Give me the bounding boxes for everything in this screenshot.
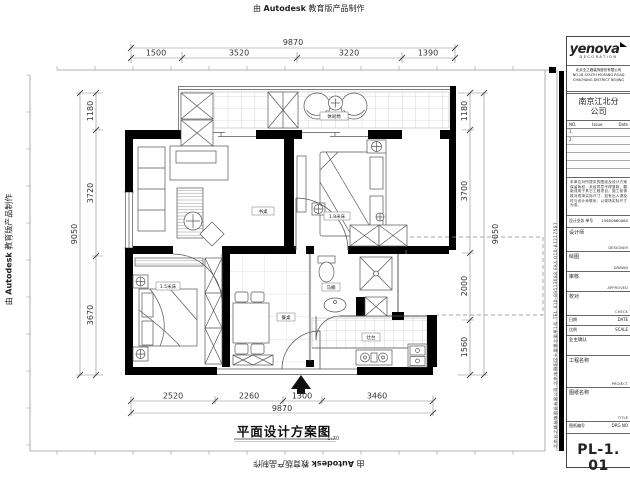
titleblock-divider-bar — [559, 71, 564, 451]
dining-chair — [251, 292, 264, 302]
dim-bottom-total: 9870 — [272, 404, 292, 413]
bedroom2-furniture — [133, 258, 222, 364]
dim-right-seg: 1560 — [460, 337, 469, 357]
watermark-left: 由 Autodesk 教育版产品制作 — [4, 175, 15, 325]
field-drawing-number: 图纸编号 DRG NO — [567, 421, 630, 433]
field-approved: 审核 APPROVED — [567, 271, 630, 291]
company-lines: 北京业之峰装饰股份有限公司 NO.18 SOUTH MOFANG ROAD CH… — [567, 65, 630, 91]
design-order-value: 15650660080 — [601, 218, 628, 227]
field-label: 比例 — [569, 327, 577, 334]
watermark-top: 由 Autodesk 教育版产品制作 — [253, 3, 365, 14]
field-date: 日期 DATE — [567, 315, 630, 325]
dim-left-seg: 1180 — [86, 101, 95, 121]
dim-right-seg: 3700 — [460, 181, 469, 201]
field-label: 绘图 — [569, 253, 579, 260]
label-balcony: 休闲椅 — [327, 113, 341, 120]
field-scale: 比例 SCALE — [567, 325, 630, 335]
label-kitchen: 灶台 — [367, 334, 376, 341]
field-value: TITLE — [618, 415, 628, 420]
field-value: DESIGNER — [608, 245, 628, 250]
issue-row: 1. — [567, 129, 630, 137]
field-value: APPROVED — [607, 285, 628, 290]
watermark-brand: Autodesk — [312, 459, 354, 468]
branch-name: 南京江北分公司 — [567, 91, 630, 120]
dining-chair — [235, 292, 248, 302]
field-label: 设计师 — [569, 229, 584, 236]
drawing-sheet: 休闲椅 书桌 1.8米床 1.5米床 餐桌 马桶 灶台 9870 1500 35… — [0, 0, 630, 477]
watermark-bottom: 由 Autodesk 教育版产品制作 — [253, 458, 365, 469]
frame-corner-mark — [549, 67, 556, 73]
issue-row — [567, 161, 630, 169]
field-check: 校对 CHECK — [567, 291, 630, 315]
label-dining: 餐桌 — [282, 314, 291, 321]
label-bed2: 1.5米床 — [160, 283, 177, 290]
issue-row: 2. — [567, 137, 630, 145]
field-label: 审核 — [569, 273, 579, 280]
plan-title-text: 平面设计方案图 — [237, 424, 332, 439]
watermark-text: 教育版产品制作 — [5, 194, 14, 250]
design-order-label: 设计业务 单号 — [569, 218, 593, 227]
watermark-text: 由 — [253, 4, 261, 13]
design-order-row: 设计业务 单号 15650660080 — [567, 215, 630, 227]
dim-bottom-seg: 1300 — [292, 392, 312, 401]
curtain-box — [135, 258, 203, 266]
issue-table-header: NO. Issue Date — [567, 121, 630, 129]
field-project: 工程名称 PROJECT — [567, 355, 630, 387]
field-value: SCALE — [615, 327, 628, 334]
dim-left-seg: 3670 — [86, 305, 95, 325]
master-furniture — [297, 140, 407, 246]
issue-col-no: NO. — [569, 122, 576, 127]
sheet-number: PL-1. 01 — [567, 433, 630, 466]
logo: yenova DECORATION — [567, 38, 630, 65]
dim-top-total: 9870 — [283, 38, 303, 47]
dim-top-seg: 1500 — [146, 49, 166, 58]
field-sheet-title: 图纸名称 TITLE — [567, 387, 630, 421]
field-owner-confirm: 业主确认 — [567, 335, 630, 355]
label-bath: 马桶 — [327, 284, 336, 291]
dim-right-seg: 1180 — [460, 101, 469, 121]
watermark-brand: Autodesk — [5, 252, 14, 294]
issue-row — [567, 145, 630, 153]
field-label: 日期 — [569, 317, 577, 324]
dim-left-total: 9050 — [70, 224, 79, 244]
dim-top-seg: 1390 — [418, 49, 438, 58]
field-value: PROJECT — [612, 381, 628, 386]
floor-plan-drawing: 休闲椅 书桌 1.8米床 1.5米床 餐桌 马桶 灶台 9870 1500 35… — [0, 0, 630, 477]
dimensions-left: 1180 3720 3670 9050 — [70, 90, 103, 378]
field-value: DATE — [618, 317, 628, 324]
dimensions-top: 9870 1500 3520 3220 1390 — [128, 38, 458, 63]
wash-basin — [324, 298, 346, 312]
drawing-title: 平面设计方案图 1:70 — [234, 424, 340, 442]
dimensions-bottom: 2520 2260 1300 3460 9870 — [128, 392, 436, 417]
dimensions-right: 1180 3700 2000 1560 9050 — [458, 90, 500, 378]
issue-table: NO. Issue Date 1. 2. — [567, 120, 630, 177]
label-master-bed: 1.8米床 — [329, 213, 346, 220]
dim-top-seg: 3520 — [229, 49, 249, 58]
pillow — [370, 196, 383, 228]
dining-table — [233, 303, 269, 343]
field-value: DRAWN — [614, 265, 628, 270]
field-designer: 设计师 DESIGNER — [567, 227, 630, 251]
dim-right-seg: 2000 — [460, 276, 469, 296]
shoe-cabinet — [233, 355, 273, 365]
watermark-text: 教育版产品制作 — [253, 459, 309, 468]
slider-master-balcony — [302, 133, 368, 137]
company-line: CHAOYANG DISTRICT BEIJING — [567, 78, 630, 83]
watermark-brand: Autodesk — [264, 4, 306, 13]
toilet — [319, 262, 334, 282]
watermark-text: 由 — [5, 297, 14, 305]
field-value: CHECK — [615, 309, 628, 314]
issue-col-issue: Issue — [592, 122, 602, 127]
issue-col-date: Date — [618, 122, 628, 127]
dining-chair — [235, 344, 248, 354]
entry-threshold — [217, 369, 357, 375]
dim-bottom-seg: 2520 — [163, 392, 183, 401]
field-value: DRG NO — [612, 423, 628, 432]
pillow — [370, 157, 383, 189]
field-drawn: 绘图 DRAWN — [567, 251, 630, 271]
title-block: yenova DECORATION 北京业之峰装饰股份有限公司 NO.18 SO… — [566, 36, 630, 468]
dim-right-total: 9050 — [491, 224, 500, 244]
dim-bottom-seg: 3460 — [367, 392, 387, 401]
watermark-text: 由 — [357, 459, 365, 468]
pillow — [142, 321, 153, 345]
dim-left-seg: 3720 — [86, 183, 95, 203]
master-cabinet — [297, 156, 306, 212]
study-furniture — [138, 146, 228, 246]
notes-text: 本单位对所提供的图纸及设计方案保留版权，未经同意不得复制、翻版或用于其它工程项目… — [567, 177, 630, 215]
field-label: 图纸编号 — [569, 423, 585, 432]
dim-bottom-seg: 2260 — [239, 392, 259, 401]
study-chair — [200, 222, 224, 246]
issue-row — [567, 153, 630, 161]
logo-flag-icon — [620, 42, 627, 47]
label-study: 书桌 — [259, 208, 268, 215]
field-label: 工程名称 — [569, 357, 589, 364]
field-label: 图纸名称 — [569, 389, 589, 396]
dim-top-seg: 3220 — [339, 49, 359, 58]
dining-chair — [251, 344, 264, 354]
field-label: 校对 — [569, 293, 579, 300]
watermark-text: 教育版产品制作 — [309, 4, 365, 13]
